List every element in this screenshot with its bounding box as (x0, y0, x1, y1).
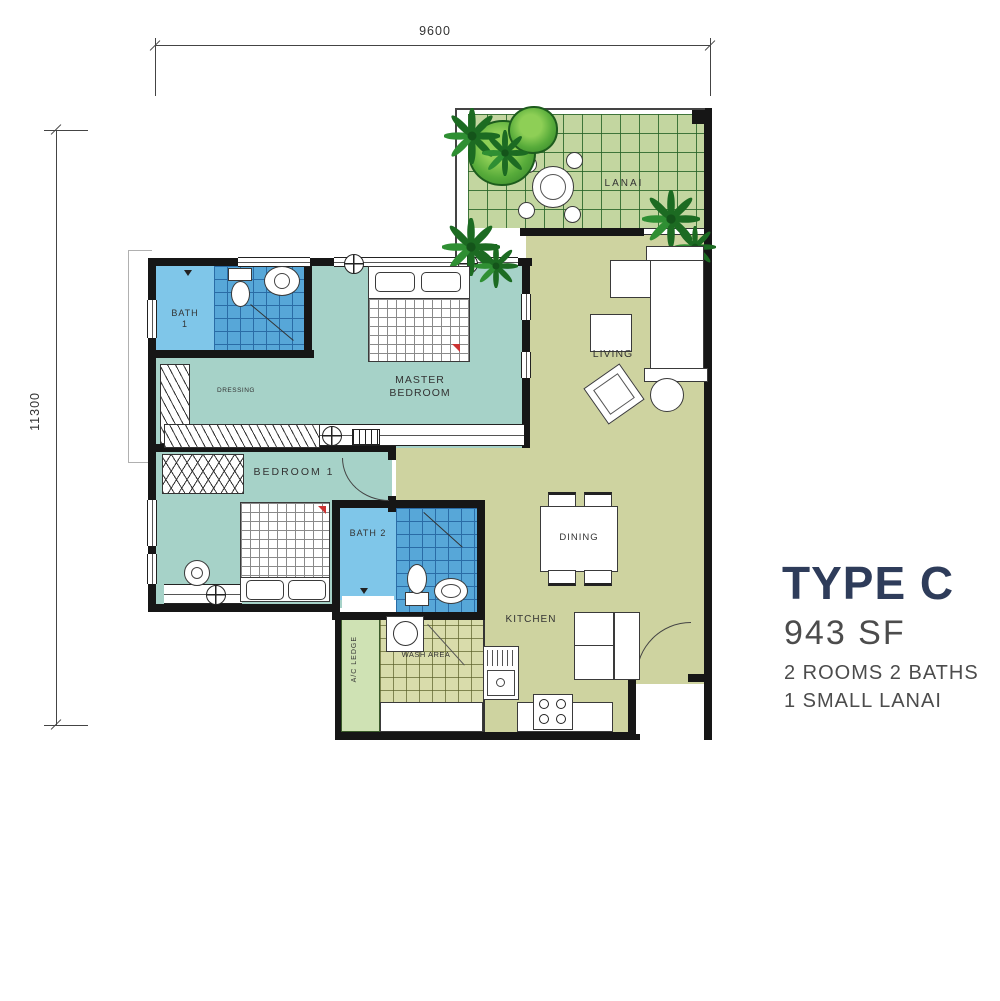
window-top-1 (238, 257, 310, 267)
window-bedroom1-band (164, 584, 242, 604)
ac-ledge-strip (341, 614, 380, 732)
vent-grill-icon (352, 429, 380, 445)
entry-notch (636, 684, 704, 734)
dining-chair-icon (584, 570, 612, 586)
wall-lanai-corner (692, 108, 712, 124)
sink-drainer-icon (487, 650, 515, 666)
wall-bath2-left (332, 500, 340, 620)
bath2-label: BATH 2 (348, 528, 388, 539)
unit-rooms-baths: 2 ROOMS 2 BATHS (784, 662, 979, 685)
window-master-right-1 (521, 294, 531, 320)
bedroom1-label: BEDROOM 1 (234, 466, 354, 479)
pillow-icon (421, 272, 461, 292)
burner-icon (556, 714, 566, 724)
burner-icon (539, 699, 549, 709)
blanket-fold-mark (452, 344, 460, 352)
wall-bath1-bottom (156, 350, 314, 358)
patio-chair-icon (566, 152, 583, 169)
top-dim-ext-left (155, 38, 156, 96)
unit-lanai-note: 1 SMALL LANAI (784, 690, 942, 713)
bath2-shower-mark (360, 588, 368, 594)
sink-basin-icon (441, 584, 461, 598)
sink-drain-icon (496, 678, 505, 687)
wall-ac-left (335, 612, 341, 740)
basin-drain-icon (274, 273, 290, 289)
left-dim-ext-top (44, 130, 88, 131)
window-left-3 (147, 554, 157, 584)
room-bath2-floor (340, 508, 396, 600)
kitchen-cabinet (614, 612, 640, 680)
bedroom1-wardrobe (162, 454, 244, 494)
fan-icon (322, 426, 342, 446)
palm-plant-icon (474, 244, 518, 288)
dressing-label: DRESSING (198, 387, 274, 395)
wall-right (704, 108, 712, 740)
left-dim-ext-bottom (44, 725, 88, 726)
wall-bottom (335, 732, 640, 740)
wall-entry-vertical (628, 674, 636, 734)
fridge-icon (574, 612, 614, 680)
pillow-icon (375, 272, 415, 292)
toilet-icon (405, 592, 429, 606)
toilet-bowl-icon (407, 564, 427, 594)
window-master-right-2 (521, 352, 531, 378)
coffee-table (590, 314, 632, 352)
palm-plant-icon (482, 130, 528, 176)
pillow-icon (288, 580, 326, 600)
wall-bedroom1-bottom (148, 604, 340, 612)
window-master-bottom-band (318, 424, 524, 446)
wall-bath2-top (332, 500, 485, 508)
patio-chair-icon (518, 202, 535, 219)
pillow-icon (246, 580, 284, 600)
patio-chair-icon (564, 206, 581, 223)
wall-bath1-right (304, 262, 312, 358)
patio-table-top-icon (540, 174, 566, 200)
fan-icon (344, 254, 364, 274)
stove-icon (533, 694, 573, 730)
dining-label: DINING (540, 532, 618, 544)
kitchen-label: KITCHEN (496, 614, 566, 627)
sofa-vertical (650, 260, 704, 374)
unit-area: 943 SF (784, 614, 906, 653)
burner-icon (556, 699, 566, 709)
bedroom1-bed-blanket (240, 502, 330, 578)
dressing-wardrobe-bottom (164, 424, 320, 448)
wash-counter (380, 702, 483, 732)
top-dimension-label: 9600 (400, 24, 470, 40)
window-left-2 (147, 500, 157, 546)
wall-lanai-bottom (520, 228, 644, 236)
toilet-bowl-icon (231, 281, 250, 307)
bath2-threshold (342, 596, 394, 610)
left-dimension-label: 11300 (28, 392, 44, 431)
top-dim-ext-right (710, 38, 711, 96)
ac-ledge-label: A/C LEDGE (351, 636, 360, 682)
lanai-label: LANAI (588, 178, 660, 191)
top-dimension-line (155, 45, 711, 46)
bath1-shower-mark (184, 270, 192, 276)
wash-area-label: WASH AREA (400, 650, 452, 659)
left-dimension-line (56, 130, 57, 725)
master-bedroom-label: MASTER BEDROOM (372, 374, 468, 400)
bath1-label: BATH 1 (167, 308, 203, 331)
wall-bath2-right (477, 500, 485, 620)
lamp-shade-icon (191, 567, 203, 579)
blanket-fold-mark (318, 506, 326, 514)
living-label: LIVING (584, 348, 642, 361)
floor-plan: 9600 11300 (0, 0, 1000, 1001)
side-table (650, 378, 684, 412)
toilet-icon (228, 268, 252, 281)
unit-type-title: TYPE C (782, 556, 954, 610)
burner-icon (539, 714, 549, 724)
washer-drum-icon (393, 621, 418, 646)
dining-chair-icon (548, 570, 576, 586)
wall-bedroom1-door-stub-top (388, 444, 396, 460)
window-left-1 (147, 300, 157, 338)
master-bed-blanket (368, 298, 470, 362)
fan-icon (206, 585, 226, 605)
fridge-divider (575, 645, 613, 646)
